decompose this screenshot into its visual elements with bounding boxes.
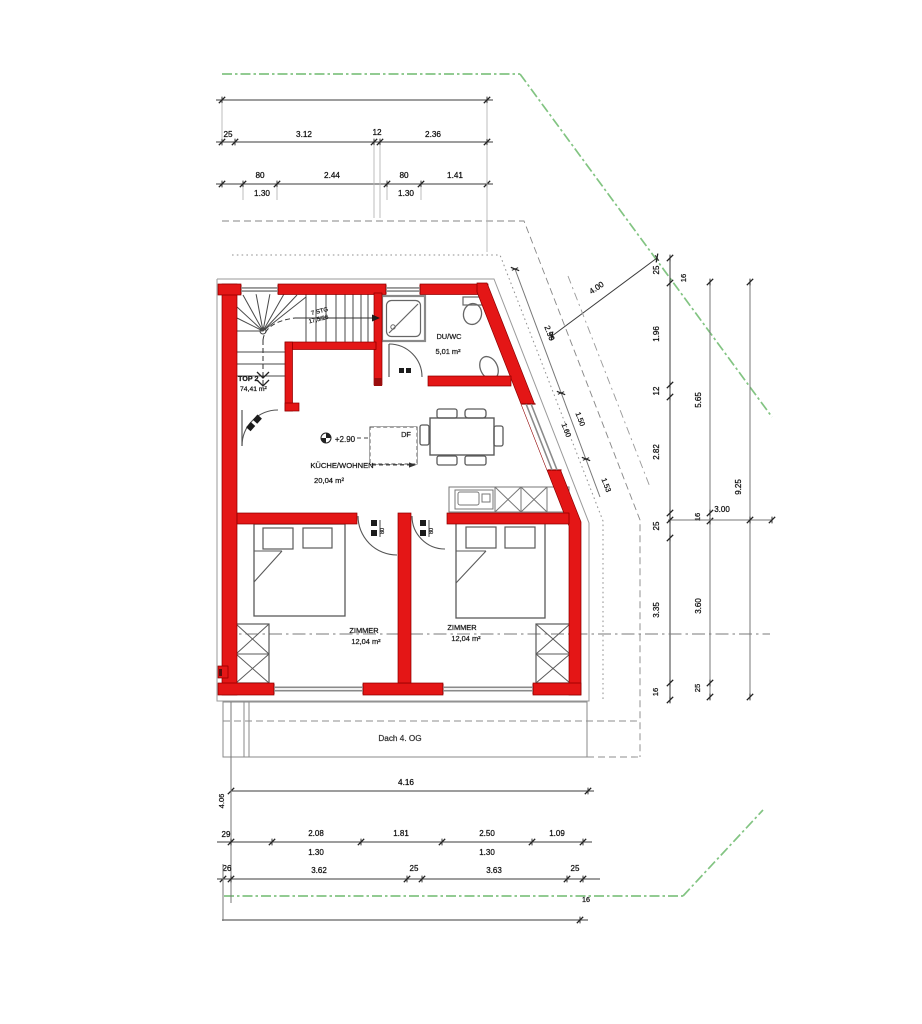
svg-text:3.62: 3.62 — [311, 866, 327, 875]
svg-text:80: 80 — [399, 171, 409, 180]
svg-text:2.50: 2.50 — [479, 829, 495, 838]
svg-text:3.63: 3.63 — [486, 866, 502, 875]
svg-text:ZIMMER: ZIMMER — [349, 626, 378, 635]
svg-text:12,04 m²: 12,04 m² — [351, 637, 381, 646]
svg-text:1.81: 1.81 — [393, 829, 409, 838]
svg-text:1.30: 1.30 — [398, 189, 414, 198]
svg-text:9.25: 9.25 — [734, 479, 743, 495]
svg-text:16: 16 — [679, 274, 688, 282]
svg-text:ZIMMER: ZIMMER — [447, 623, 476, 632]
svg-text:12,04 m²: 12,04 m² — [451, 634, 481, 643]
svg-text:74,41 m²: 74,41 m² — [240, 386, 268, 393]
svg-text:Dach 4. OG: Dach 4. OG — [378, 734, 421, 743]
svg-text:DU/WC: DU/WC — [436, 332, 462, 341]
svg-text:80: 80 — [255, 171, 265, 180]
svg-text:4.16: 4.16 — [398, 778, 414, 787]
svg-text:1.30: 1.30 — [479, 848, 495, 857]
svg-text:3.00: 3.00 — [714, 505, 730, 514]
svg-text:80: 80 — [380, 528, 386, 534]
svg-text:29: 29 — [222, 830, 231, 839]
svg-text:25: 25 — [652, 521, 661, 530]
svg-text:5,01 m²: 5,01 m² — [435, 347, 461, 356]
svg-text:KÜCHE/WOHNEN: KÜCHE/WOHNEN — [310, 461, 373, 470]
svg-text:3.12: 3.12 — [296, 130, 312, 139]
svg-text:25: 25 — [223, 130, 233, 139]
svg-text:25: 25 — [571, 864, 580, 873]
svg-text:2.36: 2.36 — [425, 130, 441, 139]
svg-text:16: 16 — [582, 895, 590, 904]
svg-text:20,04 m²: 20,04 m² — [314, 476, 344, 485]
svg-text:1.30: 1.30 — [308, 848, 324, 857]
svg-text:3.35: 3.35 — [652, 602, 661, 618]
svg-text:80: 80 — [429, 528, 435, 534]
svg-text:26: 26 — [223, 864, 232, 873]
svg-text:DF: DF — [401, 430, 411, 439]
svg-text:2.82: 2.82 — [652, 444, 661, 460]
svg-text:1.96: 1.96 — [652, 326, 661, 342]
svg-text:1.30: 1.30 — [254, 189, 270, 198]
svg-text:1.09: 1.09 — [549, 829, 565, 838]
svg-text:16: 16 — [651, 688, 660, 696]
svg-text:2.08: 2.08 — [308, 829, 324, 838]
svg-text:25: 25 — [652, 265, 661, 274]
svg-text:TOP 2: TOP 2 — [238, 374, 259, 383]
svg-text:5.65: 5.65 — [694, 392, 703, 408]
svg-text:12: 12 — [652, 386, 661, 395]
svg-text:4.06: 4.06 — [217, 794, 226, 809]
svg-text:25: 25 — [693, 684, 702, 692]
svg-text:12: 12 — [372, 128, 382, 137]
svg-text:+2.90: +2.90 — [335, 435, 356, 444]
svg-text:25: 25 — [410, 864, 419, 873]
svg-text:3.60: 3.60 — [694, 598, 703, 614]
svg-text:1.41: 1.41 — [447, 171, 463, 180]
svg-text:2.44: 2.44 — [324, 171, 340, 180]
